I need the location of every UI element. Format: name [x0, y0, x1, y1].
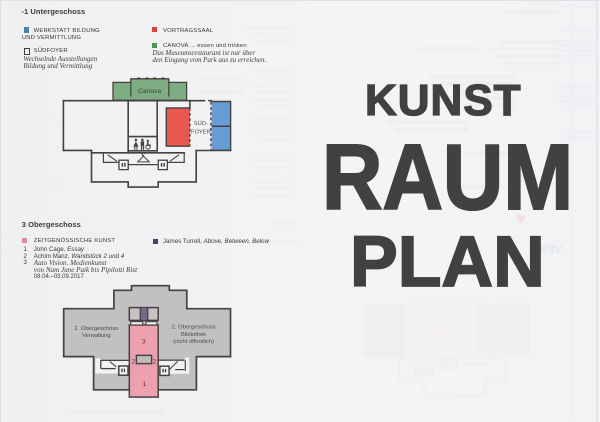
svg-text:(nicht öffentlich): (nicht öffentlich) — [173, 339, 214, 345]
svg-text:2: 2 — [153, 358, 157, 365]
svg-text:Canova: Canova — [138, 88, 161, 95]
svg-text:1: 1 — [142, 381, 146, 388]
svg-text:3: 3 — [142, 339, 146, 346]
svg-text:Bibliothek: Bibliothek — [181, 332, 206, 338]
svg-text:2. Obergeschoss: 2. Obergeschoss — [172, 325, 216, 331]
svg-text:Verwaltung: Verwaltung — [82, 333, 111, 339]
svg-text:2: 2 — [132, 358, 136, 365]
svg-text:FOYER: FOYER — [191, 130, 211, 136]
svg-text:2. Obergeschoss: 2. Obergeschoss — [74, 326, 118, 332]
svg-text:SÜD-: SÜD- — [194, 120, 208, 127]
